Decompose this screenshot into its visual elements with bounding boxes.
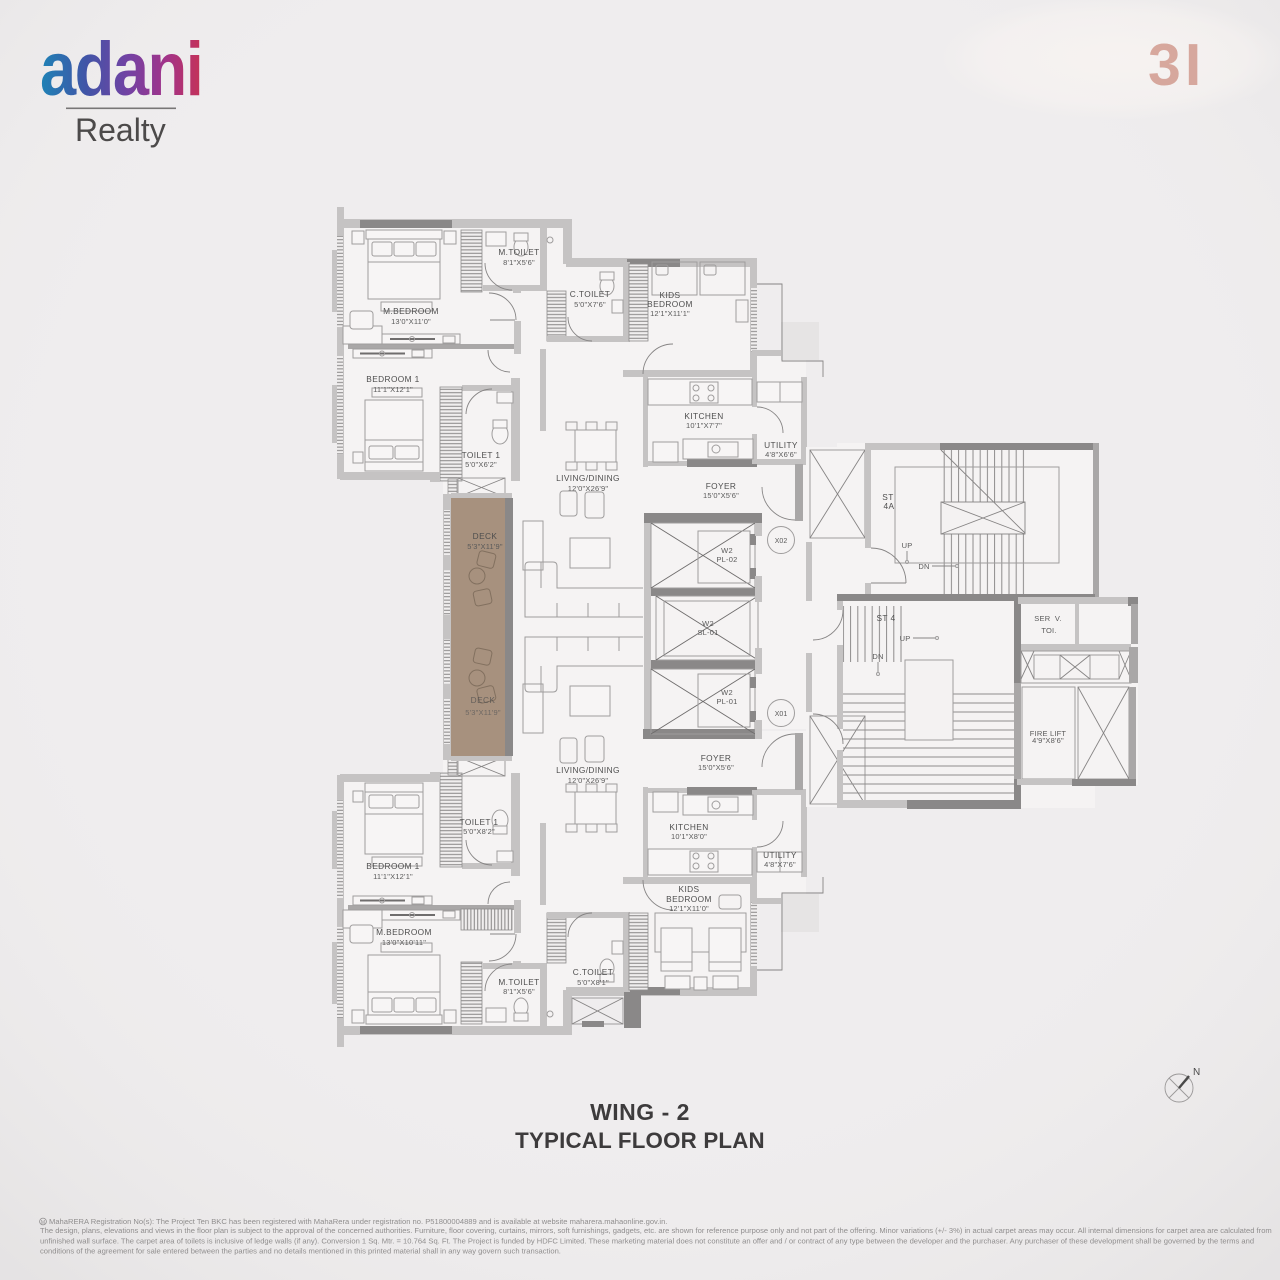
svg-text:TYPICAL FLOOR PLAN: TYPICAL FLOOR PLAN [515, 1128, 765, 1153]
svg-text:4A: 4A [884, 501, 895, 511]
svg-text:X01: X01 [775, 711, 788, 718]
svg-text:5'0"X6'2": 5'0"X6'2" [465, 460, 497, 469]
svg-text:M.TOILET: M.TOILET [498, 977, 539, 987]
svg-text:13'0"X10'11": 13'0"X10'11" [382, 938, 426, 947]
svg-text:3I: 3I [1148, 32, 1205, 98]
svg-text:PL-02: PL-02 [716, 555, 737, 564]
svg-text:conditions of the agreement fo: conditions of the agreement for sale ent… [40, 1247, 561, 1256]
svg-text:DN: DN [872, 652, 883, 661]
svg-text:BEDROOM: BEDROOM [647, 299, 693, 309]
svg-text:BEDROOM: BEDROOM [666, 894, 712, 904]
svg-text:5'0"X8'1": 5'0"X8'1" [577, 978, 609, 987]
svg-text:4'8"X6'6": 4'8"X6'6" [765, 450, 797, 459]
svg-text:The design, plans, elevations: The design, plans, elevations and views … [40, 1226, 1272, 1235]
svg-text:13'0"X11'0": 13'0"X11'0" [391, 317, 431, 326]
svg-text:8'1"X5'6": 8'1"X5'6" [503, 987, 535, 996]
svg-text:UP: UP [900, 634, 911, 643]
svg-text:WING - 2: WING - 2 [590, 1099, 690, 1125]
svg-text:MahaRERA Registration No(s): T: MahaRERA Registration No(s): The Project… [49, 1217, 667, 1226]
svg-text:C.TOILET: C.TOILET [573, 967, 613, 977]
svg-text:4'8"X7'6": 4'8"X7'6" [764, 860, 796, 869]
svg-text:ST 4: ST 4 [877, 613, 896, 623]
svg-text:12'0"X26'9": 12'0"X26'9" [568, 484, 609, 493]
svg-text:DECK: DECK [473, 531, 498, 541]
svg-text:FOYER: FOYER [706, 481, 737, 491]
svg-text:TOILET 1: TOILET 1 [460, 817, 499, 827]
svg-text:BEDROOM 1: BEDROOM 1 [366, 374, 419, 384]
svg-text:TOILET 1: TOILET 1 [462, 450, 501, 460]
svg-text:SER V.: SER V. [1034, 614, 1061, 623]
svg-text:TOI.: TOI. [1041, 626, 1056, 635]
svg-text:5'0"X8'2": 5'0"X8'2" [463, 827, 495, 836]
svg-text:adani: adani [40, 26, 202, 111]
svg-text:5'3"X11'9": 5'3"X11'9" [465, 708, 501, 717]
svg-text:10'1"X7'7": 10'1"X7'7" [686, 421, 722, 430]
svg-text:8'1"X5'6": 8'1"X5'6" [503, 258, 535, 267]
svg-text:Realty: Realty [75, 112, 166, 148]
svg-text:4'9"X8'6": 4'9"X8'6" [1032, 736, 1064, 745]
svg-text:5'0"X7'6": 5'0"X7'6" [574, 300, 606, 309]
svg-text:BEDROOM 1: BEDROOM 1 [366, 861, 419, 871]
svg-text:M.TOILET: M.TOILET [498, 247, 539, 257]
svg-text:SL-01: SL-01 [697, 628, 718, 637]
svg-text:FOYER: FOYER [701, 753, 732, 763]
svg-text:W2: W2 [721, 688, 733, 697]
svg-text:12'1"X11'1": 12'1"X11'1" [650, 309, 690, 318]
svg-text:X02: X02 [775, 538, 788, 545]
svg-text:KITCHEN: KITCHEN [684, 411, 723, 421]
svg-text:C.TOILET: C.TOILET [570, 289, 610, 299]
svg-text:15'0"X5'6": 15'0"X5'6" [698, 763, 734, 772]
svg-text:DN: DN [918, 562, 929, 571]
svg-text:M.BEDROOM: M.BEDROOM [376, 927, 432, 937]
svg-text:UTILITY: UTILITY [763, 850, 797, 860]
svg-text:UTILITY: UTILITY [764, 440, 798, 450]
svg-text:15'0"X5'6": 15'0"X5'6" [703, 491, 739, 500]
svg-text:unfinished wall surface. The c: unfinished wall surface. The carpet area… [40, 1237, 1254, 1246]
svg-text:12'1"X11'0": 12'1"X11'0" [669, 904, 709, 913]
svg-text:W2: W2 [721, 546, 733, 555]
svg-text:5'3"X11'9": 5'3"X11'9" [467, 542, 503, 551]
svg-text:UP: UP [902, 541, 913, 550]
svg-text:LIVING/DINING: LIVING/DINING [556, 473, 620, 483]
svg-text:W2: W2 [702, 619, 714, 628]
svg-text:M.BEDROOM: M.BEDROOM [383, 306, 439, 316]
svg-text:LIVING/DINING: LIVING/DINING [556, 765, 620, 775]
svg-text:N: N [1193, 1067, 1200, 1078]
svg-text:KIDS: KIDS [679, 884, 700, 894]
svg-text:11'1"X12'1": 11'1"X12'1" [373, 872, 413, 881]
svg-text:12'0"X26'9": 12'0"X26'9" [568, 776, 609, 785]
svg-text:11'1"X12'1": 11'1"X12'1" [373, 385, 413, 394]
svg-text:DECK: DECK [471, 695, 496, 705]
svg-text:PL-01: PL-01 [716, 697, 737, 706]
svg-text:10'1"X8'0": 10'1"X8'0" [671, 832, 707, 841]
svg-text:KITCHEN: KITCHEN [669, 822, 708, 832]
